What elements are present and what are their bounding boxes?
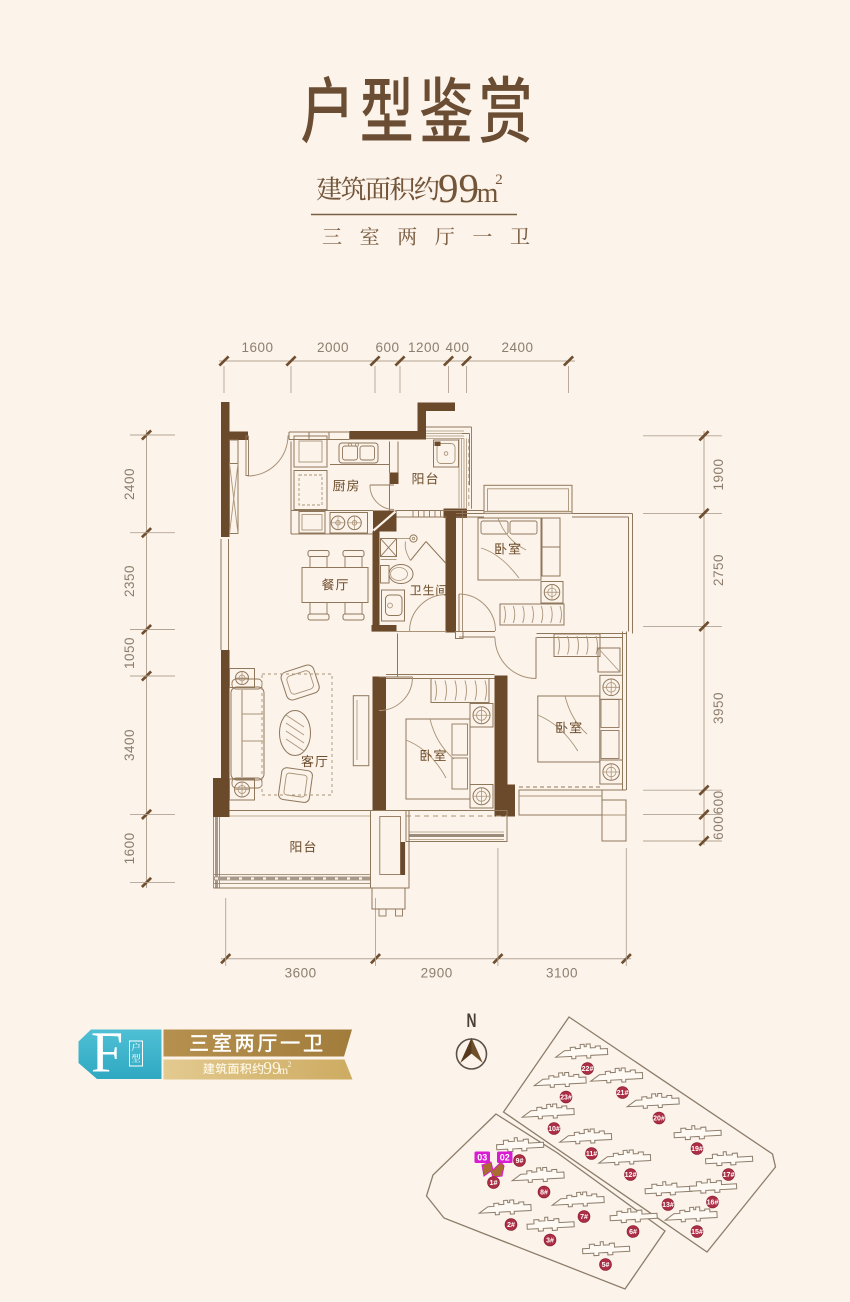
svg-text:3950: 3950	[711, 692, 726, 724]
svg-text:16#: 16#	[707, 1200, 719, 1207]
svg-text:2350: 2350	[122, 565, 137, 597]
svg-text:1#: 1#	[490, 1178, 498, 1187]
svg-text:1600: 1600	[241, 340, 273, 355]
svg-text:03: 03	[477, 1152, 487, 1162]
svg-text:2400: 2400	[501, 340, 533, 355]
svg-text:13#: 13#	[662, 1202, 674, 1209]
svg-text:12#: 12#	[625, 1172, 637, 1179]
svg-text:15#: 15#	[691, 1229, 703, 1236]
svg-text:600: 600	[711, 816, 726, 840]
svg-text:3100: 3100	[546, 966, 578, 981]
svg-text:2: 2	[288, 1060, 292, 1069]
svg-text:99: 99	[438, 165, 479, 211]
svg-text:5#: 5#	[602, 1262, 610, 1269]
svg-text:8#: 8#	[540, 1190, 548, 1197]
svg-text:400: 400	[445, 340, 469, 355]
svg-text:21#: 21#	[617, 1090, 629, 1097]
svg-text:2: 2	[495, 172, 503, 188]
svg-text:22#: 22#	[582, 1066, 594, 1073]
svg-text:1200: 1200	[408, 340, 440, 355]
svg-text:1900: 1900	[711, 458, 726, 490]
svg-text:1600: 1600	[122, 832, 137, 864]
svg-text:600: 600	[375, 340, 399, 355]
svg-text:3400: 3400	[122, 729, 137, 761]
svg-text:600: 600	[711, 790, 726, 814]
svg-text:7#: 7#	[580, 1214, 588, 1221]
svg-text:F: F	[91, 1020, 123, 1085]
svg-text:23#: 23#	[560, 1095, 572, 1102]
svg-text:20#: 20#	[653, 1116, 665, 1123]
svg-text:17#: 17#	[723, 1172, 735, 1179]
svg-text:19#: 19#	[691, 1146, 703, 1153]
svg-text:9#: 9#	[516, 1158, 524, 1165]
svg-text:2900: 2900	[421, 966, 453, 981]
svg-text:1050: 1050	[122, 637, 137, 669]
svg-text:2000: 2000	[317, 340, 349, 355]
svg-text:10#: 10#	[548, 1126, 560, 1133]
svg-text:N: N	[467, 1011, 477, 1032]
svg-text:2400: 2400	[122, 468, 137, 500]
svg-text:3600: 3600	[285, 966, 317, 981]
svg-text:02: 02	[500, 1152, 510, 1162]
svg-text:3#: 3#	[546, 1238, 554, 1245]
svg-text:11#: 11#	[586, 1151, 597, 1158]
svg-text:6#: 6#	[629, 1229, 637, 1236]
svg-text:2750: 2750	[711, 554, 726, 586]
svg-text:2#: 2#	[507, 1222, 515, 1229]
